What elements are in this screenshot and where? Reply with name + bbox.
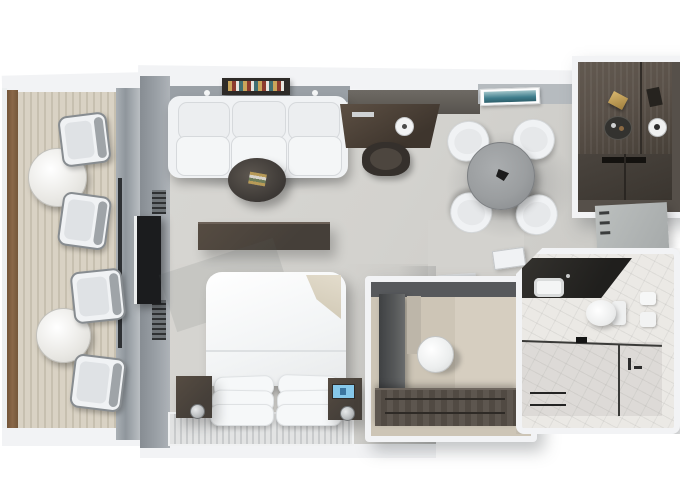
balcony-wood-railing — [6, 90, 18, 438]
alarm-clock — [332, 384, 355, 399]
wall-towel-upper — [640, 292, 656, 305]
bar-plate-center — [654, 124, 660, 130]
sink — [534, 278, 564, 297]
sofa-back-cushion — [178, 102, 230, 140]
book-ledge — [222, 78, 290, 95]
east-wall-segment — [595, 202, 669, 252]
bed — [206, 272, 346, 424]
wall-vent-mark — [599, 211, 609, 215]
shower-glass-return — [618, 344, 620, 416]
walk-in-closet — [365, 276, 537, 442]
wall-art-frame — [480, 87, 541, 106]
coffee-table-books — [248, 172, 267, 187]
wall-vent-mark — [600, 221, 610, 225]
bar-tray — [604, 116, 632, 140]
balcony-outer-band — [2, 88, 7, 440]
shower-door-handle — [576, 337, 587, 343]
wardrobe-column — [379, 294, 405, 390]
lower-hull-band — [140, 444, 436, 458]
balcony-chair-4 — [69, 353, 127, 413]
towel-rail — [530, 392, 566, 406]
bathroom — [516, 248, 680, 434]
bar-counter — [578, 62, 672, 154]
bar-bottle — [619, 126, 624, 131]
sofa-back-cushion — [232, 101, 286, 139]
bar-plate — [648, 118, 667, 137]
bedside-lamp-right — [340, 406, 355, 421]
desk-clock-center — [402, 124, 407, 129]
shower-valve — [628, 358, 631, 370]
wall-art-teal-image — [484, 90, 536, 103]
balcony-chair-1 — [57, 111, 112, 168]
balcony-chair-2 — [56, 191, 112, 251]
balcony — [2, 74, 140, 446]
bar-counter-divider — [640, 62, 642, 154]
drawer-bank — [375, 388, 517, 426]
book-spines — [228, 81, 284, 91]
sofa-seat-cushion — [288, 136, 342, 176]
sliding-door-frame — [118, 178, 122, 348]
bedside-lamp-left — [190, 404, 205, 419]
faucet — [566, 274, 570, 278]
desk-paper — [352, 112, 374, 117]
wall-vent-mark — [600, 231, 610, 235]
louver-vent-lower — [152, 300, 166, 340]
desk-clock — [395, 117, 414, 136]
beige-throw-fold — [306, 275, 341, 319]
tv — [134, 216, 161, 304]
toilet-bowl — [586, 300, 616, 326]
louver-vent-upper — [152, 190, 166, 214]
coffee-table — [228, 158, 286, 202]
sofa-back-cushion — [288, 102, 340, 140]
dining-table-centerpiece — [496, 169, 509, 181]
sofa-seat-cushion — [176, 136, 230, 176]
duvet-fold-line — [206, 350, 346, 352]
desk-chair-seat — [370, 148, 402, 170]
floor-plan — [0, 0, 680, 485]
drawer-seam — [385, 412, 505, 414]
desk-chair — [362, 142, 410, 176]
bar-pantry — [572, 56, 680, 218]
bar-bottle — [611, 123, 616, 128]
wall-towel-lower — [640, 312, 656, 327]
bed-duvet — [206, 272, 346, 386]
shower-control — [634, 366, 642, 369]
vanity-stool — [417, 336, 454, 373]
toilet — [586, 298, 628, 328]
bar-cabinet-seam — [624, 154, 626, 200]
drawer-seam — [385, 398, 505, 400]
bar-lower-cabinets — [578, 154, 672, 200]
alarm-clock-digits — [340, 388, 346, 395]
dining-table — [467, 142, 535, 210]
pillow — [210, 404, 274, 426]
balcony-chair-3 — [69, 267, 126, 324]
closet-floor-light — [455, 297, 519, 389]
